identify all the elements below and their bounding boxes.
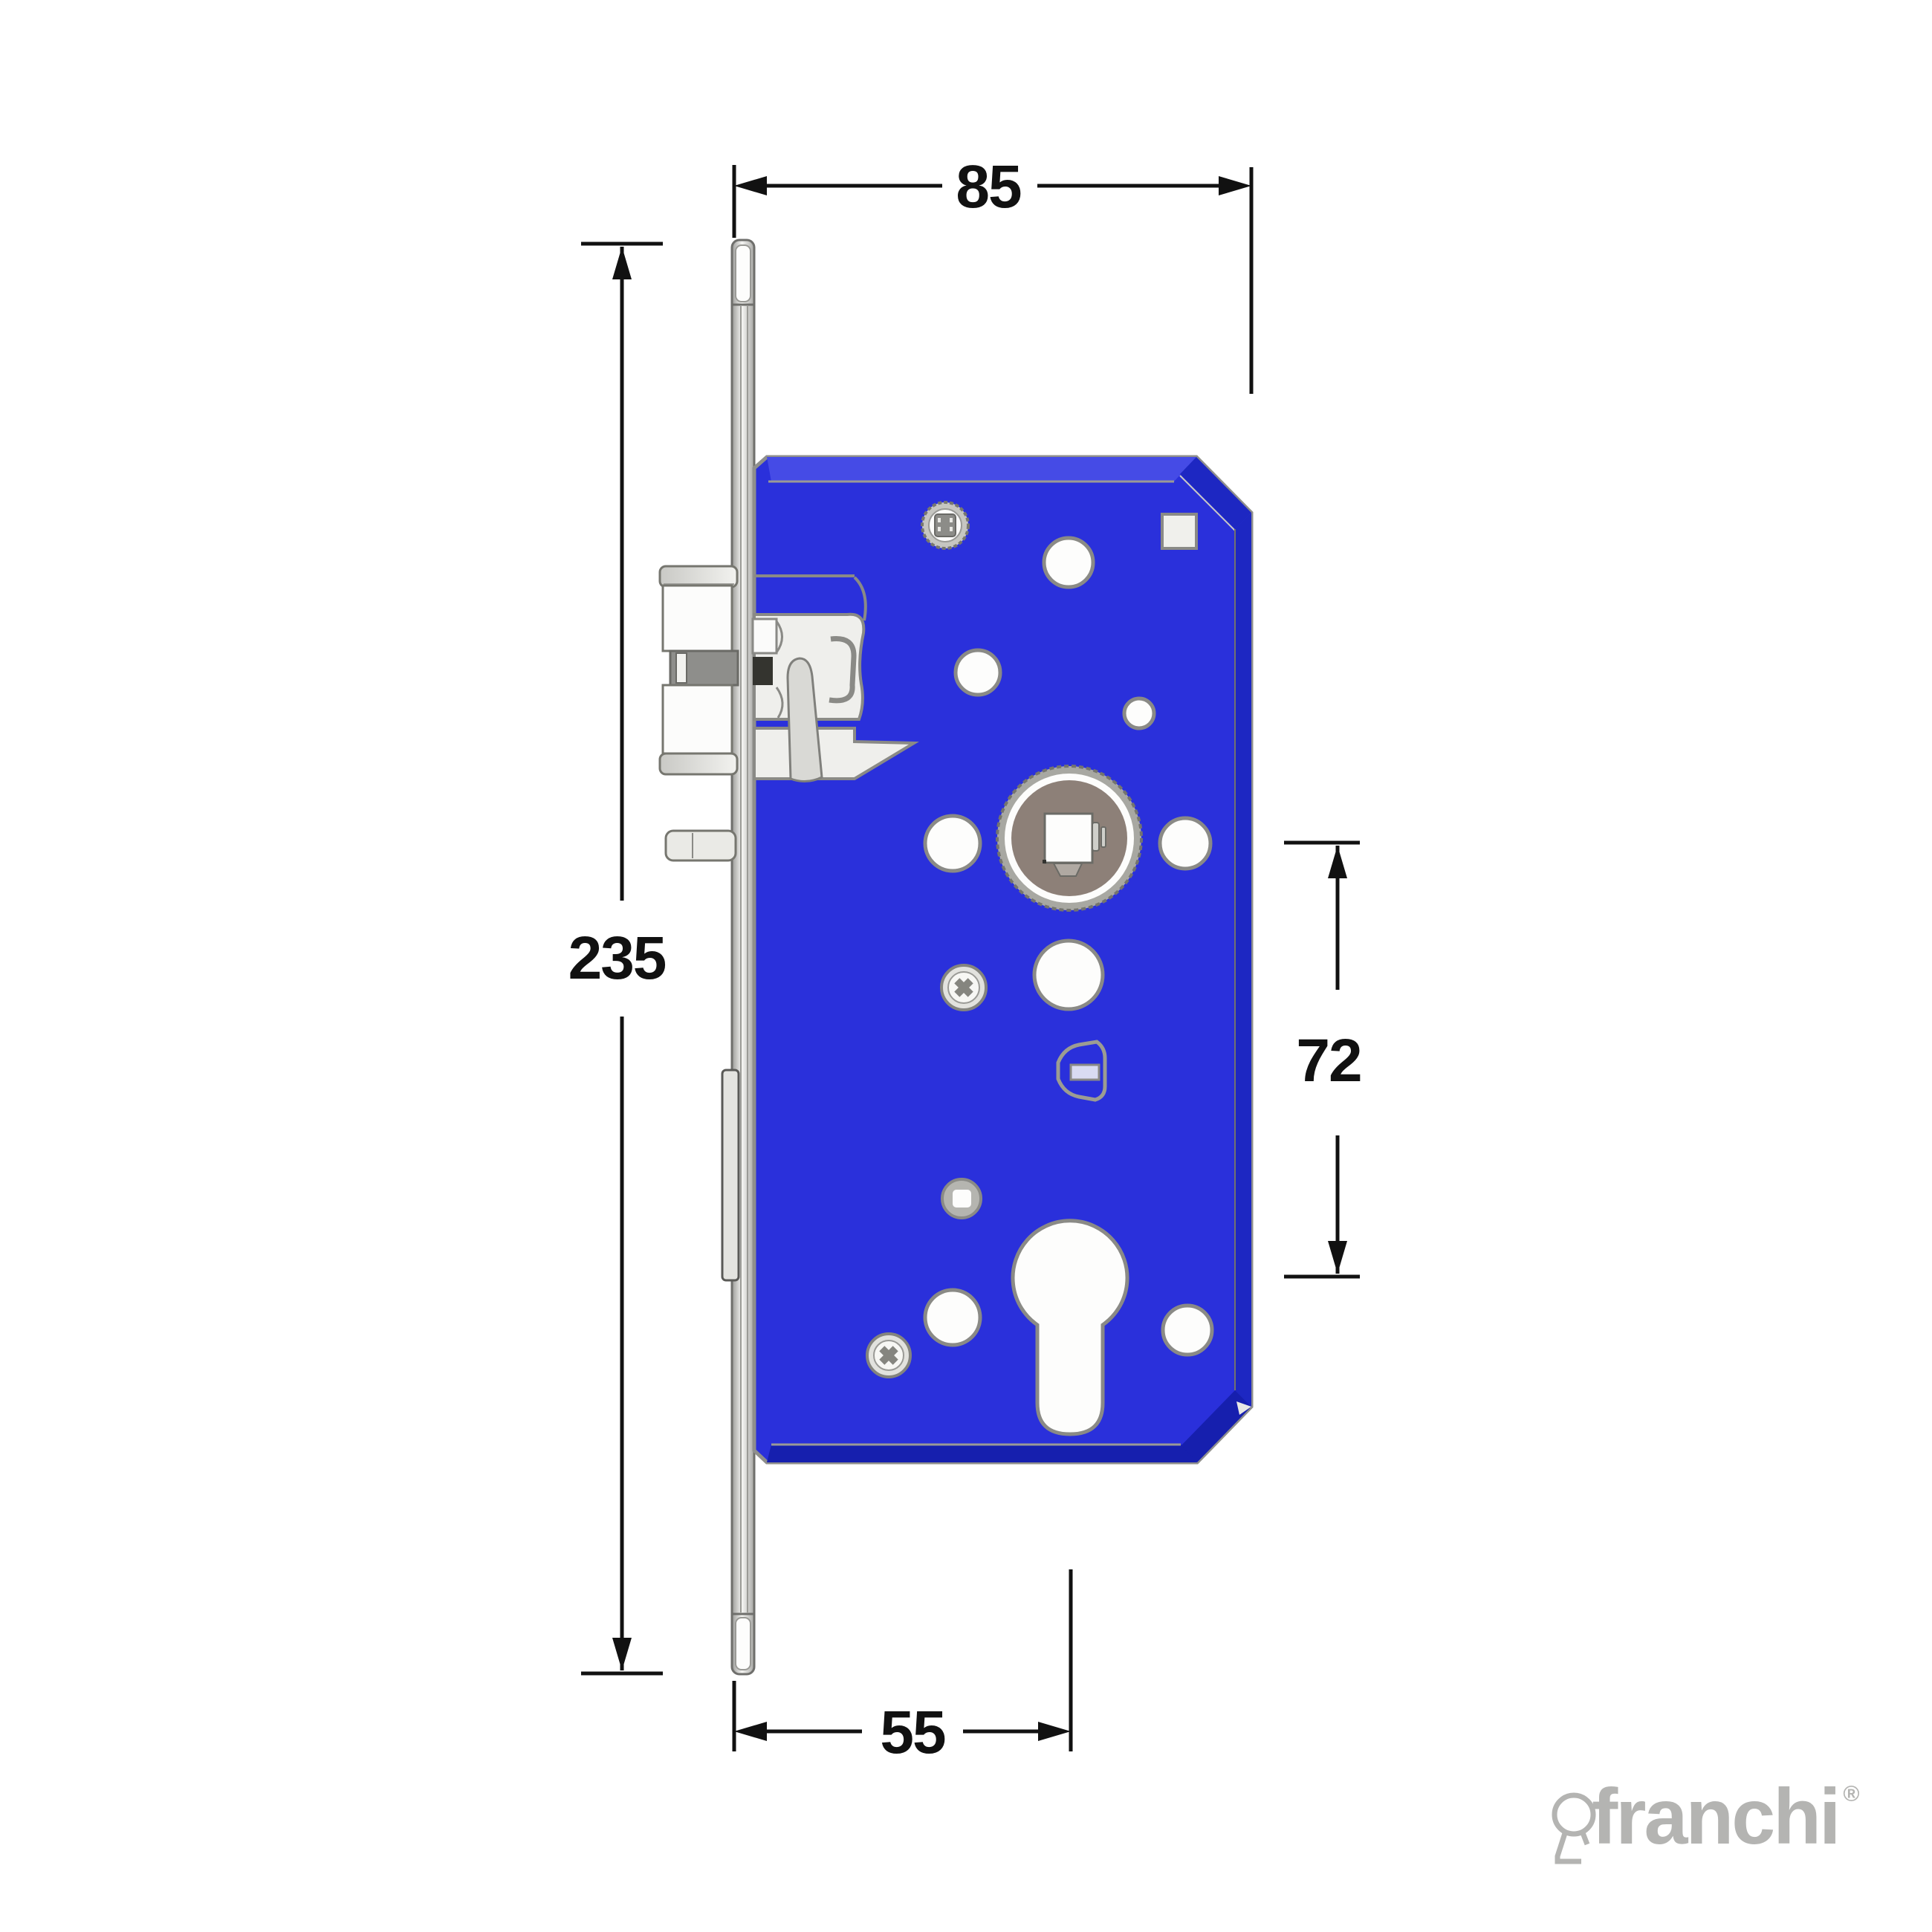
- phillips-screw: [941, 965, 986, 1010]
- hole: [1034, 941, 1103, 1009]
- square-spindle-hole: [1045, 814, 1092, 863]
- deadbolt: [722, 1070, 739, 1280]
- top-knurled-screw: [922, 502, 968, 548]
- bottom-bevel: [767, 1445, 1197, 1462]
- hole: [925, 1290, 980, 1345]
- square-hole: [1162, 514, 1196, 548]
- dim-width-label: 85: [956, 152, 1020, 222]
- phillips-screw: [867, 1334, 910, 1377]
- guide-pin: [666, 831, 736, 860]
- latch-bolt: [660, 566, 738, 774]
- latch-top-block: [663, 586, 732, 651]
- faceplate-bottom-cap: [736, 1618, 751, 1670]
- latch-bottom-block: [663, 685, 732, 753]
- latch-shank: [753, 657, 773, 685]
- brand-logo: franchi ®: [1547, 1777, 1860, 1868]
- right-bevel: [1235, 513, 1251, 1407]
- mortise-lock-drawing: [0, 0, 1932, 1932]
- dim-backset-label: 55: [880, 1698, 944, 1768]
- hole: [956, 650, 1000, 695]
- brand-wordmark: franchi: [1592, 1777, 1838, 1856]
- latch-tail: [753, 619, 777, 653]
- hole: [925, 816, 980, 871]
- hole: [1160, 818, 1210, 869]
- faceplate-top-cap: [736, 245, 751, 302]
- dim-height-label: 235: [568, 924, 666, 993]
- faceplate: [732, 240, 754, 1674]
- hole: [1044, 538, 1093, 587]
- spindle-hub: [997, 766, 1141, 910]
- hole: [1163, 1306, 1212, 1355]
- technical-drawing-canvas: 85 235 72 55 franchi ®: [0, 0, 1932, 1932]
- dim-centres-label: 72: [1296, 1026, 1361, 1096]
- registered-trademark-symbol: ®: [1843, 1782, 1859, 1807]
- hole: [1124, 698, 1154, 728]
- notched-hole: [942, 1179, 981, 1218]
- top-bevel: [767, 457, 1196, 482]
